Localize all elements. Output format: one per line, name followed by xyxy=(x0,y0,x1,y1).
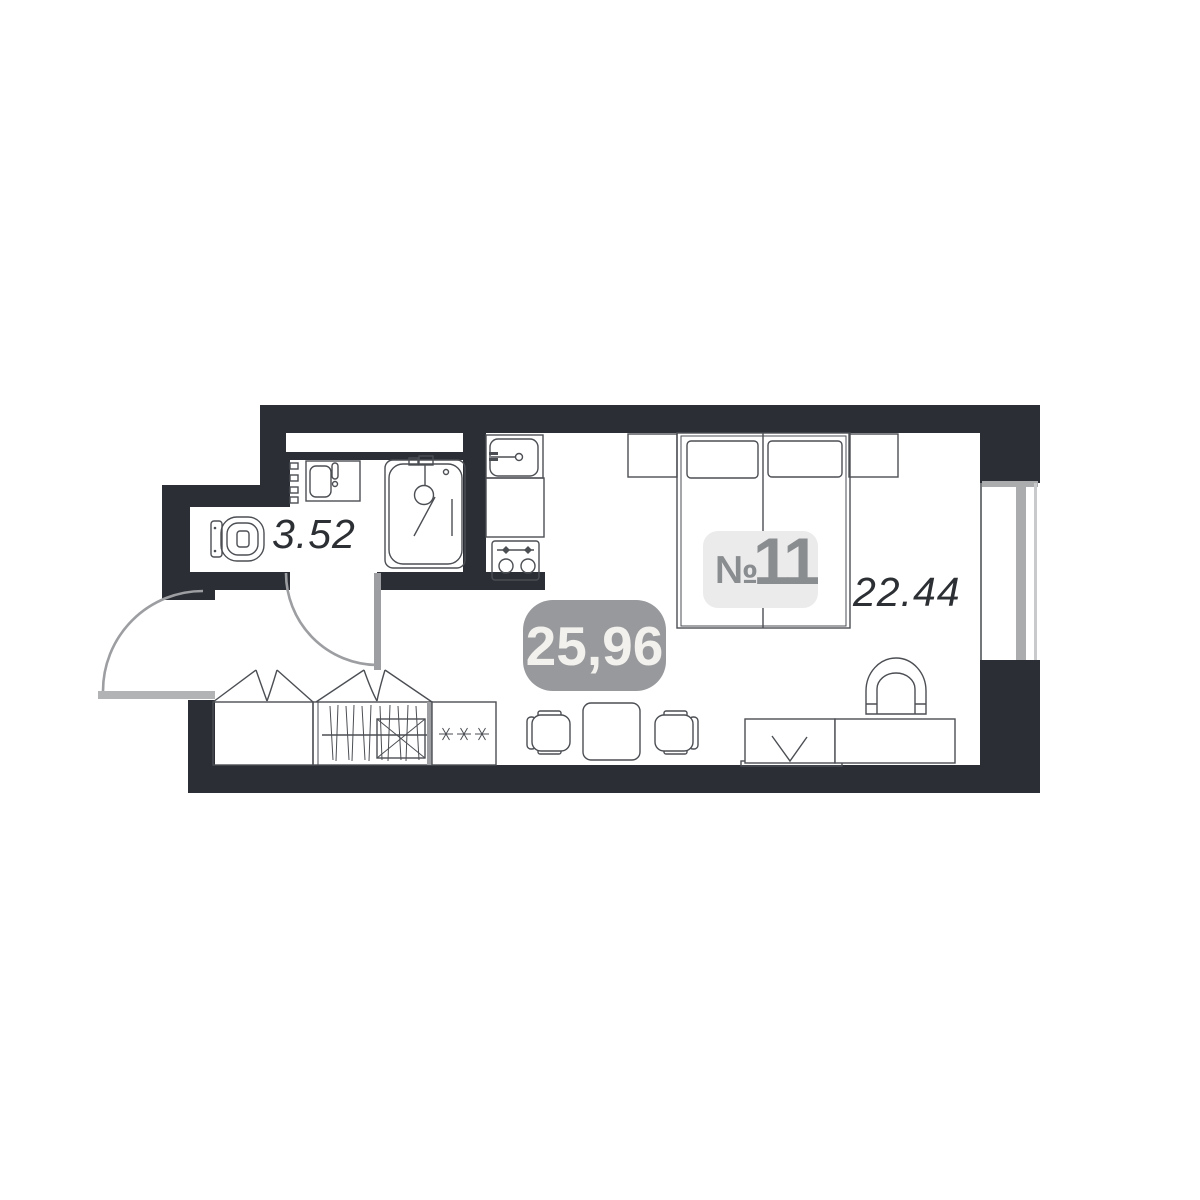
floor-plan: 3.52 22.44 № 11 25,96 xyxy=(0,0,1200,1200)
chair-right-icon xyxy=(655,711,698,754)
wall-right-lower xyxy=(980,660,1040,793)
nightstand-right xyxy=(849,434,898,477)
tv-stand xyxy=(741,719,955,766)
tv-cabinet-left xyxy=(745,719,835,763)
wall-right-upper xyxy=(980,405,1040,483)
bathroom-area-label: 3.52 xyxy=(272,511,356,558)
kitchen xyxy=(486,435,544,580)
pillow-left xyxy=(687,441,758,478)
refrigerator xyxy=(432,702,496,765)
wall-bottom xyxy=(188,765,1040,793)
wardrobe xyxy=(213,670,496,765)
washbasin-icon xyxy=(306,461,360,501)
dining-set xyxy=(527,703,698,760)
doors xyxy=(98,573,381,699)
wall-bath-bottom-right xyxy=(377,572,545,590)
window xyxy=(980,481,1038,660)
bathroom-door-leaf xyxy=(374,573,381,670)
wall-shaft-slot xyxy=(286,433,463,452)
tv-cabinet-right xyxy=(835,719,955,763)
wall-kitchen-divider xyxy=(463,452,486,590)
wardrobe-hanging-section xyxy=(313,702,435,765)
towel-rail-icon xyxy=(290,463,298,503)
unit-number: 11 xyxy=(753,523,817,599)
pillow-right xyxy=(768,441,842,477)
entry-door-arc xyxy=(103,591,203,691)
entry-door-leaf xyxy=(98,691,215,699)
wall-bath-bottom-left xyxy=(190,572,290,590)
window-head xyxy=(982,481,1038,487)
bathroom-door-arc xyxy=(286,573,377,665)
total-area-badge: 25,96 xyxy=(523,600,666,691)
wall-top xyxy=(260,405,1040,433)
wardrobe-cabinet xyxy=(213,702,313,765)
living-area-label: 22.44 xyxy=(853,569,961,616)
window-sill-line xyxy=(980,483,982,660)
window-frame-band xyxy=(1016,483,1026,660)
window-outer-line xyxy=(1034,483,1037,660)
kitchen-sink-icon xyxy=(486,435,543,478)
nightstand-left xyxy=(628,434,677,477)
toilet-icon xyxy=(211,517,264,561)
total-area-value: 25,96 xyxy=(526,614,664,678)
unit-number-badge: № 11 xyxy=(703,531,818,608)
numero-sign: № xyxy=(715,549,758,593)
armchair-icon xyxy=(866,658,926,714)
folding-doors-icon xyxy=(213,670,432,702)
table xyxy=(583,703,640,760)
chair-left-icon xyxy=(527,711,570,754)
bathtub-icon xyxy=(385,456,465,568)
kitchen-counter xyxy=(486,478,544,537)
